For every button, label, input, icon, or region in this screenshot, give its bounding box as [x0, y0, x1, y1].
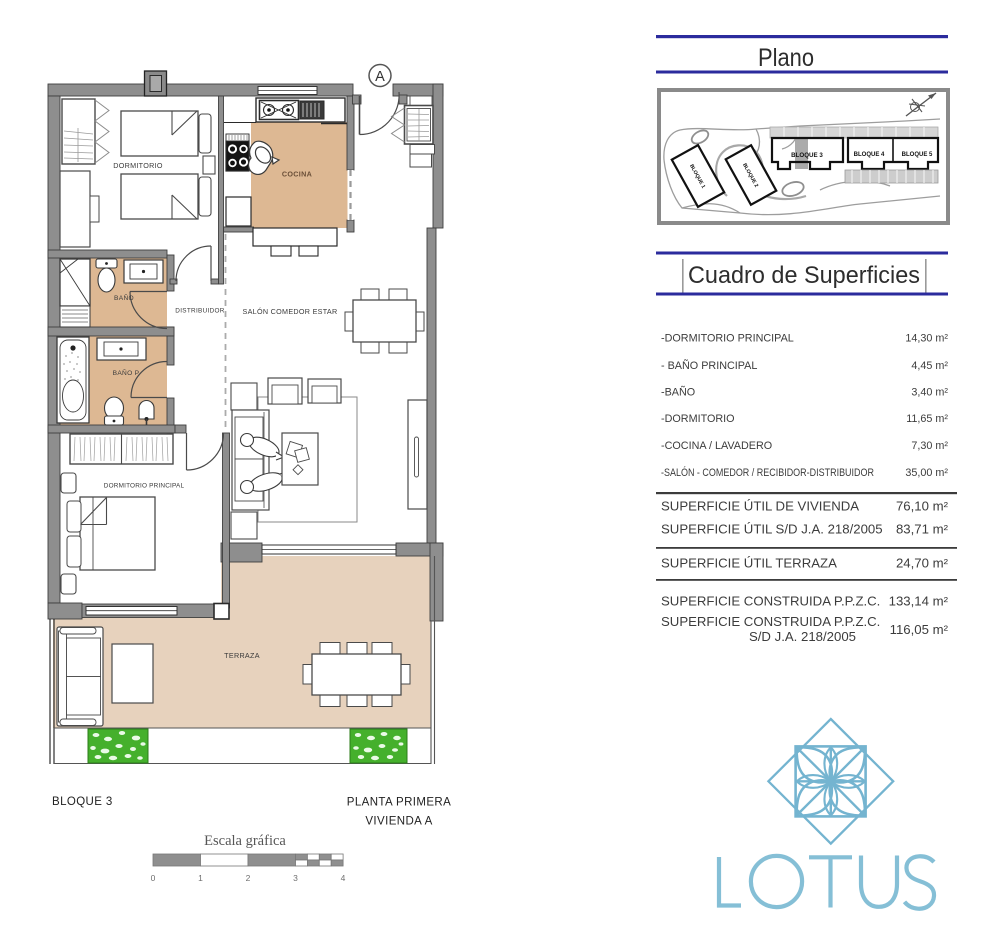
svg-text:4: 4 [341, 873, 346, 883]
svg-text:4,45 m²: 4,45 m² [911, 360, 948, 372]
svg-text:0: 0 [151, 873, 156, 883]
svg-text:24,70 m²: 24,70 m² [896, 556, 949, 571]
svg-text:VIVIENDA A: VIVIENDA A [365, 816, 432, 828]
svg-text:-BAÑO: -BAÑO [661, 386, 695, 399]
svg-text:83,71 m²: 83,71 m² [896, 522, 949, 537]
svg-text:-SALÓN - COMEDOR / RECIBIDOR-: -SALÓN - COMEDOR / RECIBIDOR-DISTRIBUIDO… [661, 466, 874, 479]
svg-text:76,10 m²: 76,10 m² [896, 499, 949, 514]
svg-text:SALÓN COMEDOR ESTAR: SALÓN COMEDOR ESTAR [242, 307, 337, 316]
svg-text:BLOQUE 3: BLOQUE 3 [52, 796, 113, 808]
svg-text:3,40 m²: 3,40 m² [911, 387, 948, 399]
svg-text:35,00 m²: 35,00 m² [905, 467, 948, 479]
svg-text:Plano: Plano [758, 44, 814, 72]
svg-text:PLANTA PRIMERA: PLANTA PRIMERA [347, 797, 451, 809]
svg-text:SUPERFICIE CONSTRUIDA P.P.Z.C.: SUPERFICIE CONSTRUIDA P.P.Z.C. [661, 594, 880, 609]
svg-text:1: 1 [198, 873, 203, 883]
svg-text:SUPERFICIE ÚTIL S/D J.A. 218/2: SUPERFICIE ÚTIL S/D J.A. 218/2005 [661, 522, 883, 537]
svg-text:7,30 m²: 7,30 m² [911, 440, 948, 452]
svg-text:DORMITORIO: DORMITORIO [113, 161, 163, 170]
svg-text:133,14 m²: 133,14 m² [889, 594, 949, 609]
svg-text:DISTRIBUIDOR: DISTRIBUIDOR [175, 308, 224, 315]
svg-text:SUPERFICIE CONSTRUIDA P.P.Z.C.: SUPERFICIE CONSTRUIDA P.P.Z.C. [661, 614, 880, 629]
svg-text:A: A [375, 69, 385, 85]
svg-text:DORMITORIO PRINCIPAL: DORMITORIO PRINCIPAL [104, 483, 185, 490]
svg-text:3: 3 [293, 873, 298, 883]
svg-text:BLOQUE 4: BLOQUE 4 [854, 152, 885, 158]
svg-text:2: 2 [246, 873, 251, 883]
svg-text:116,05 m²: 116,05 m² [890, 622, 949, 637]
svg-text:BAÑO P: BAÑO P [113, 368, 140, 377]
svg-text:BLOQUE 3: BLOQUE 3 [791, 152, 823, 159]
svg-text:-COCINA / LAVADERO: -COCINA / LAVADERO [661, 440, 772, 452]
svg-text:TERRAZA: TERRAZA [224, 651, 260, 660]
svg-text:11,65 m²: 11,65 m² [906, 413, 948, 425]
svg-text:- BAÑO PRINCIPAL: - BAÑO PRINCIPAL [661, 359, 757, 372]
svg-text:-DORMITORIO: -DORMITORIO [661, 413, 735, 425]
svg-text:COCINA: COCINA [282, 170, 312, 179]
svg-text:Escala gráfica: Escala gráfica [204, 833, 286, 849]
svg-text:BLOQUE 5: BLOQUE 5 [902, 152, 933, 158]
svg-text:Cuadro de Superficies: Cuadro de Superficies [688, 262, 920, 289]
svg-text:14,30 m²: 14,30 m² [905, 333, 948, 345]
svg-text:S/D J.A. 218/2005: S/D J.A. 218/2005 [749, 629, 856, 644]
svg-text:-DORMITORIO PRINCIPAL: -DORMITORIO PRINCIPAL [661, 333, 794, 345]
svg-text:SUPERFICIE ÚTIL DE VIVIENDA: SUPERFICIE ÚTIL DE VIVIENDA [661, 499, 859, 514]
svg-text:BAÑO: BAÑO [114, 293, 134, 302]
svg-text:SUPERFICIE ÚTIL TERRAZA: SUPERFICIE ÚTIL TERRAZA [661, 556, 837, 571]
